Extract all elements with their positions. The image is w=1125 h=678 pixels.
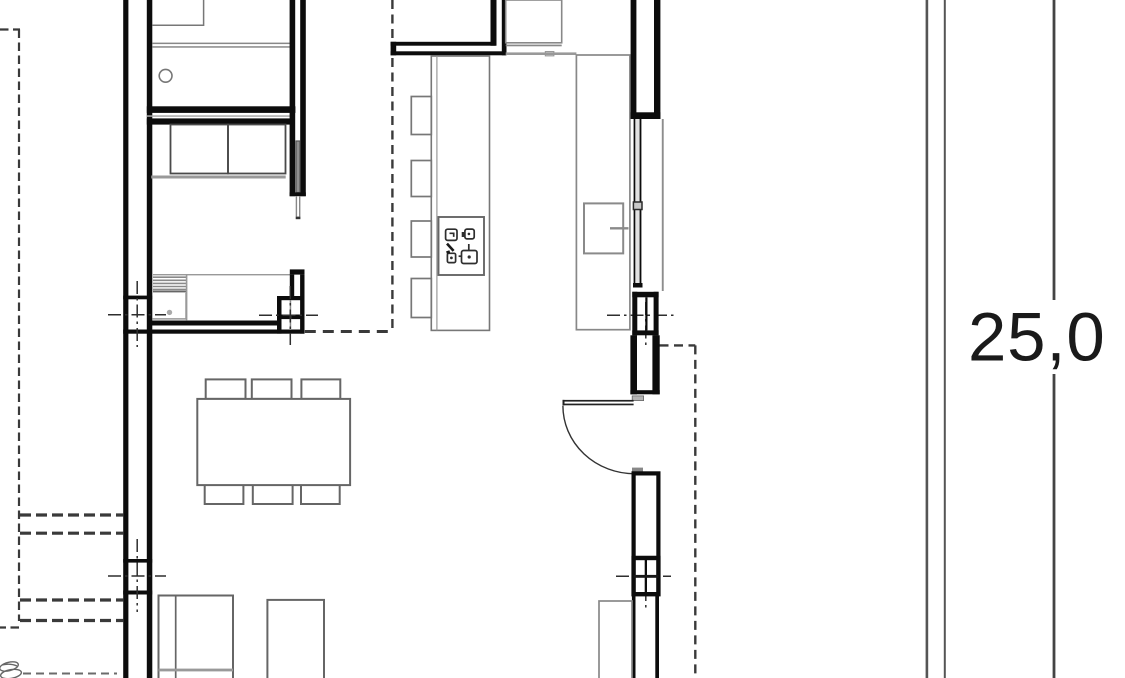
svg-text:25,0: 25,0 <box>968 299 1106 376</box>
